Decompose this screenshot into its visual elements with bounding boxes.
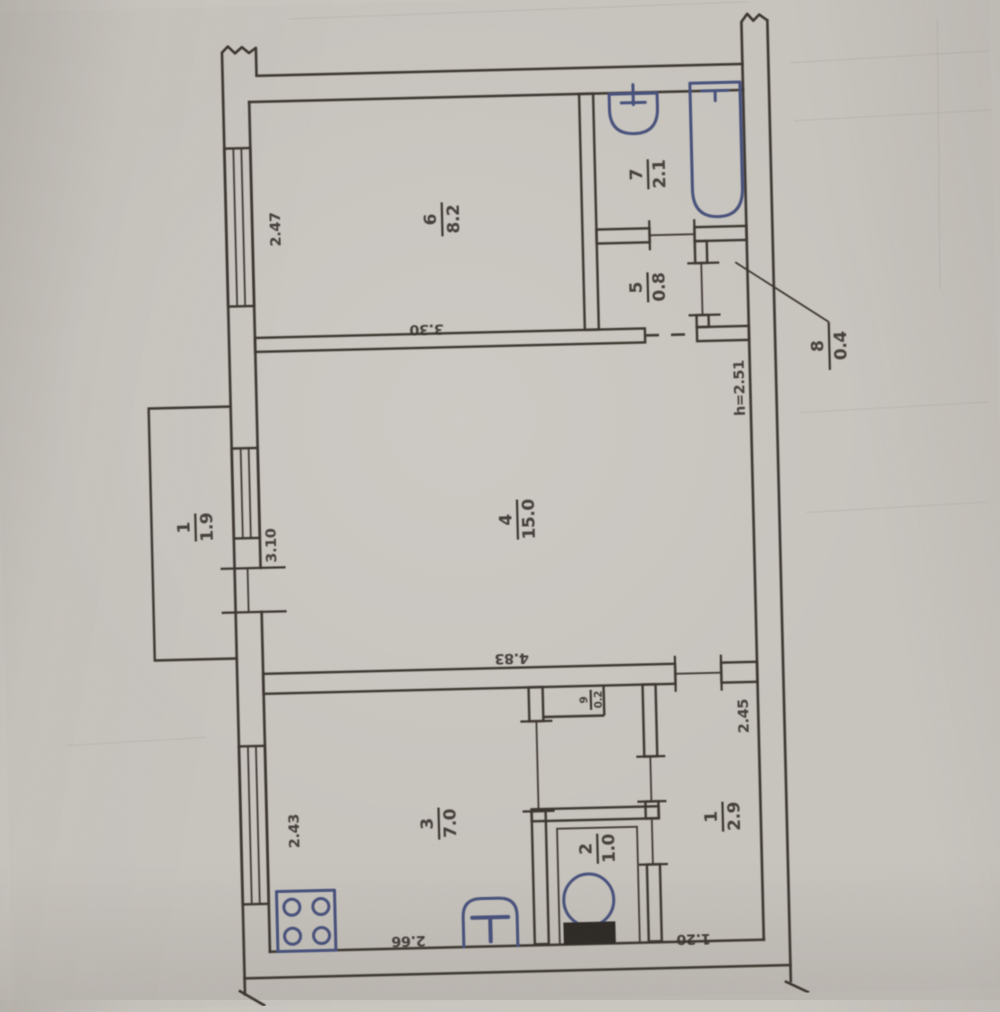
paper-grain-overlay — [0, 0, 1000, 1012]
floor-plan-photo: 6 8.2 7 2.1 5 0.8 8 0.4 4 — [0, 0, 1000, 1012]
